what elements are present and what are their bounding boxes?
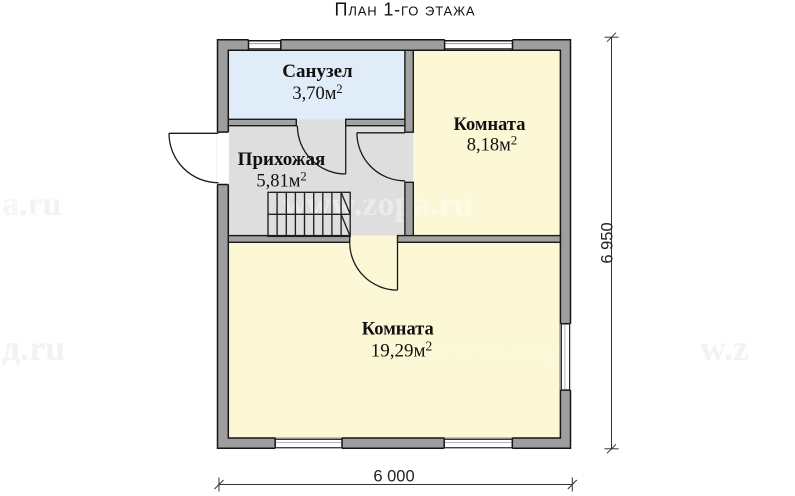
svg-text:19,29м2: 19,29м2 bbox=[371, 339, 433, 362]
svg-text:8,18м2: 8,18м2 bbox=[467, 133, 518, 156]
svg-text:www.zopа.ru: www.zopа.ru bbox=[425, 328, 627, 368]
svg-text:w.z: w.z bbox=[700, 328, 749, 368]
svg-text:www.zopа.ru: www.zopа.ru bbox=[0, 186, 43, 223]
svg-text:д.ru: д.ru bbox=[2, 328, 65, 368]
svg-text:Комната: Комната bbox=[362, 320, 434, 340]
svg-text:www.zopа.ru: www.zopа.ru bbox=[282, 186, 473, 223]
svg-text:3,70м2: 3,70м2 bbox=[292, 82, 342, 104]
svg-text:Санузел: Санузел bbox=[282, 61, 353, 82]
svg-text:6 950: 6 950 bbox=[599, 222, 617, 263]
svg-text:6 000: 6 000 bbox=[373, 468, 414, 486]
svg-text:Прихожая: Прихожая bbox=[238, 149, 326, 170]
svg-text:План 1-го этажа: План 1-го этажа bbox=[335, 0, 476, 20]
svg-text:5,81м2: 5,81м2 bbox=[256, 170, 306, 192]
